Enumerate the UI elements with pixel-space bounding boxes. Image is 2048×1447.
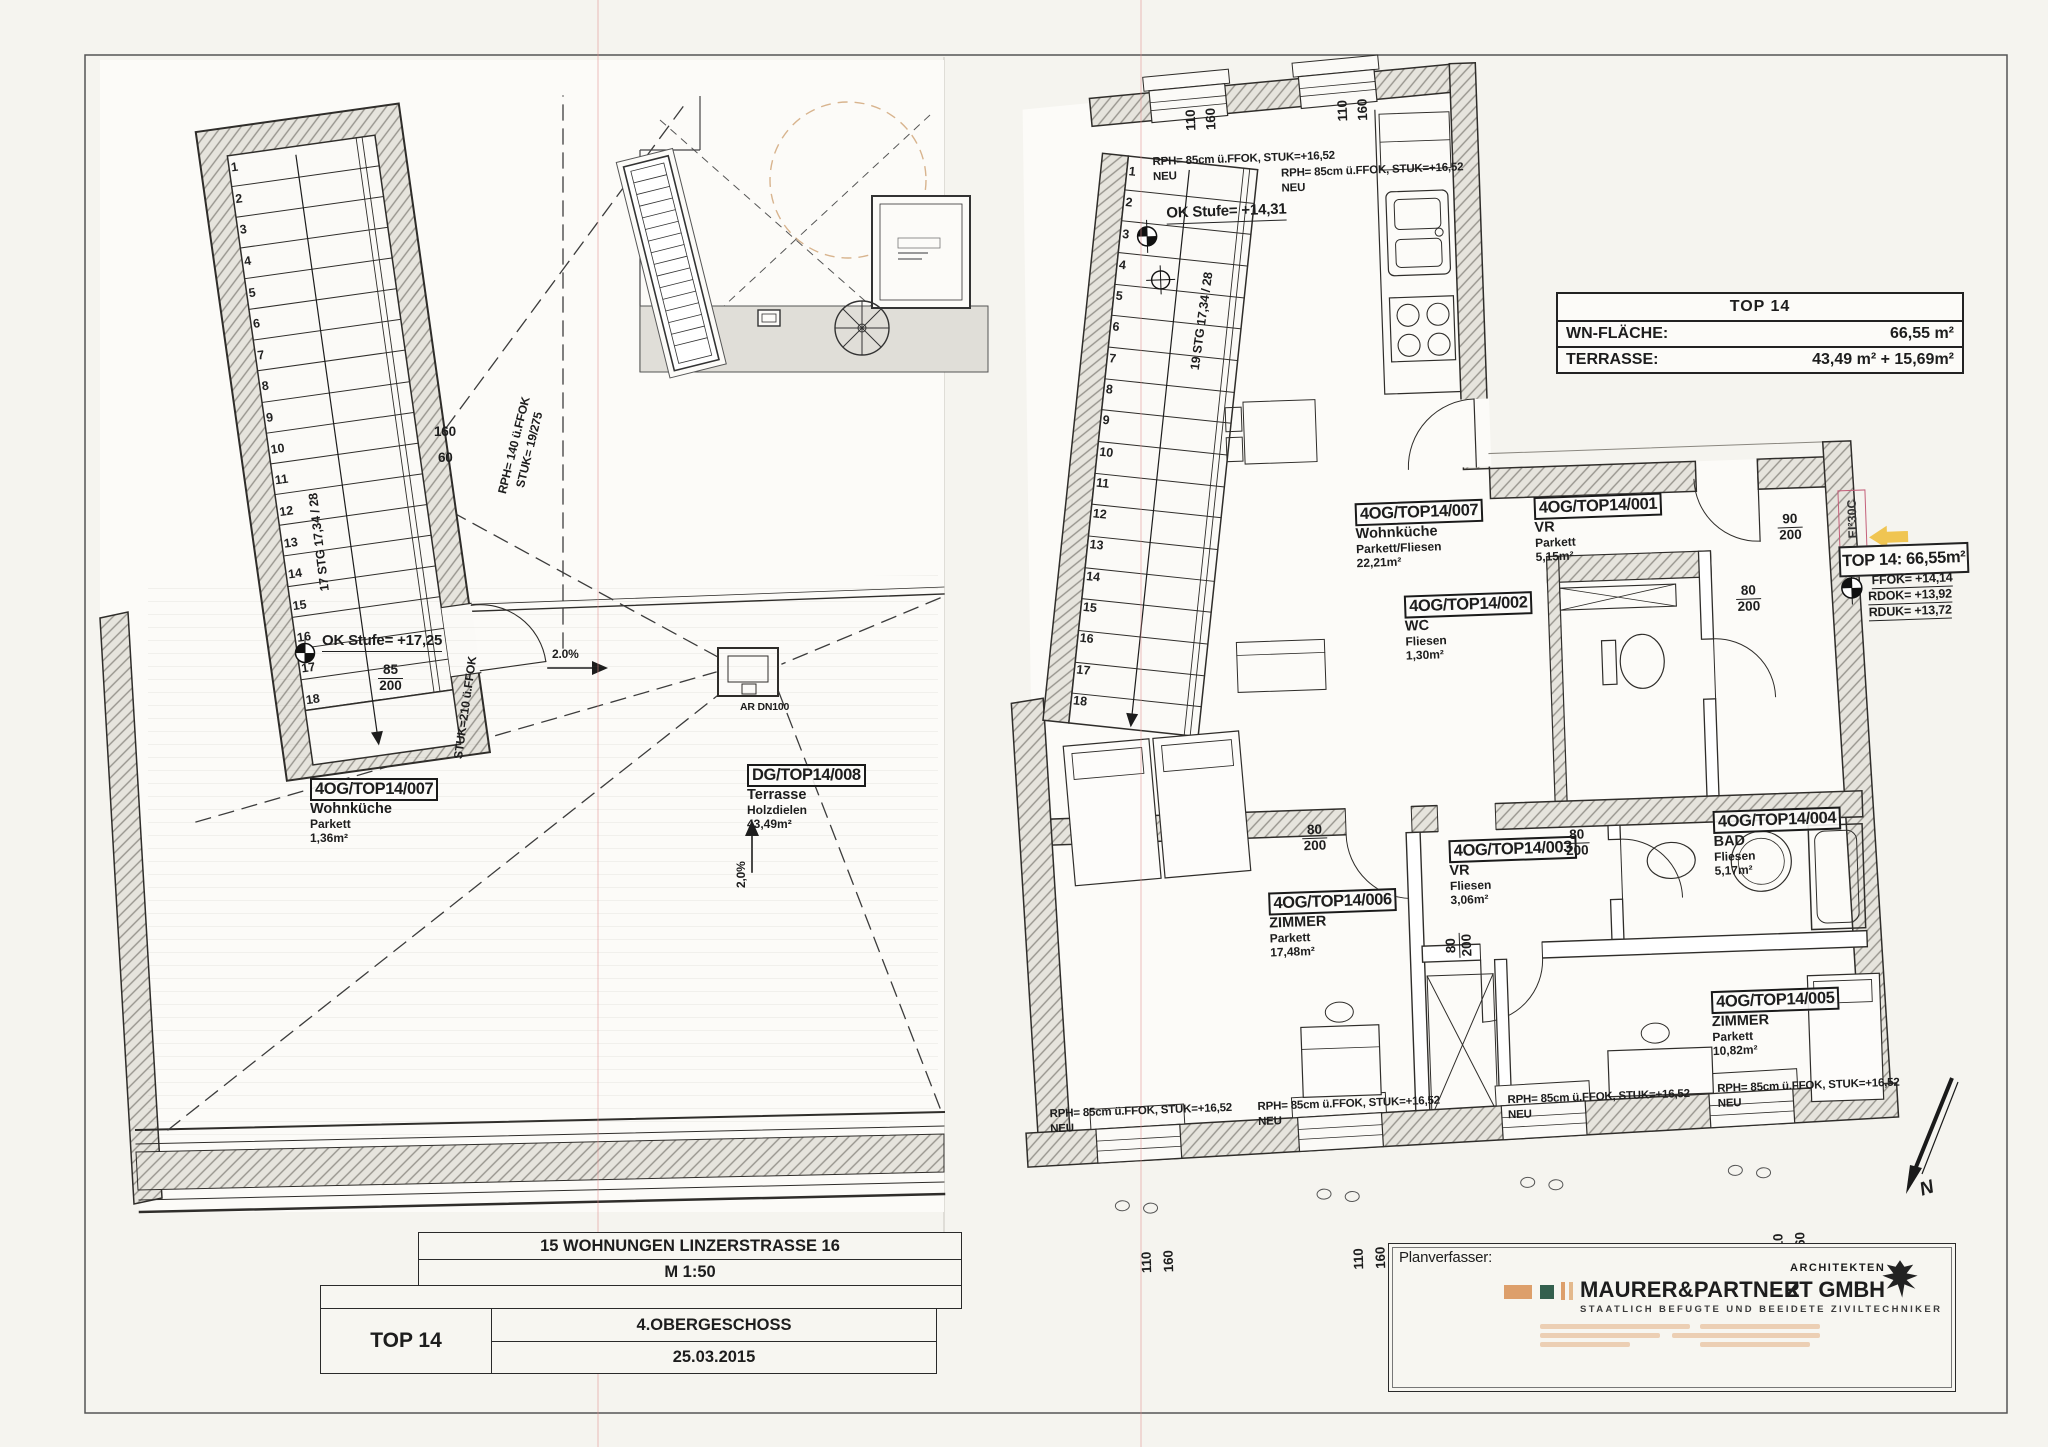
address-line [1540,1333,1660,1338]
title-project: 15 WOHNUNGEN LINZERSTRASSE 16 [418,1232,962,1260]
fold-line [597,0,599,1447]
dim-160: 160 [434,424,456,439]
eagle-emblem [1880,1258,1920,1302]
summary-row: TERRASSE: 43,49 m² + 15,69m² [1558,346,1962,372]
dim-60: 60 [438,450,453,465]
floor-plan-sheet: 123 456 789 101112 131415 161718 17 STG … [0,0,2048,1447]
title-date: 25.03.2015 [491,1341,937,1374]
north-arrow [1906,1078,1958,1194]
window [1143,69,1233,123]
summary-row: WN-FLÄCHE: 66,55 m² [1558,322,1962,346]
title-floor: 4.OBERGESCHOSS [491,1308,937,1342]
firm-name: MAURER&PARTNER [1580,1278,1800,1303]
window [1292,55,1382,109]
title-unit: TOP 14 [320,1308,492,1374]
summary-label: WN-FLÄCHE: [1566,325,1668,343]
fold-line [1140,0,1142,1447]
room-label-terrasse: DG/TOP14/008 Terrasse Holzdielen 43,49m² [747,764,866,831]
address-line [1700,1324,1820,1329]
logo-bar [1569,1282,1573,1300]
title-scale: M 1:50 [418,1259,962,1286]
summary-title: TOP 14 [1558,294,1962,322]
address-line [1540,1342,1630,1347]
room-label-wohnkueche-small: 4OG/TOP14/007 Wohnküche Parkett 1,36m² [310,778,438,845]
summary-label: TERRASSE: [1566,351,1658,369]
window [1291,1092,1391,1204]
planner-label: Planverfasser: [1399,1250,1492,1267]
address-line [1700,1342,1810,1347]
summary-value: 66,55 m² [1890,325,1954,343]
window [1495,1081,1595,1193]
firm-subtitle: STAATLICH BEFUGTE UND BEEIDETE ZIVILTECH… [1580,1305,1942,1316]
slope-label-h: 2.0% [552,648,579,661]
title-empty-row [320,1285,962,1309]
logo-bar [1561,1282,1565,1300]
firm-architekten: ARCHITEKTEN [1790,1262,1885,1274]
address-line [1540,1324,1690,1329]
inset-spiral-stair [835,301,889,355]
slope-label-v: 2,0% [735,861,748,888]
ok-stufe-left: OK Stufe= +17,25 [322,633,442,652]
door-dim-85-200: 85200 [378,663,403,693]
logo-square-green [1540,1285,1554,1299]
summary-value: 43,49 m² + 15,69m² [1812,351,1954,369]
highlight-arrow [1869,525,1909,549]
area-summary-table: TOP 14 WN-FLÄCHE: 66,55 m² TERRASSE: 43,… [1556,292,1964,374]
address-line [1672,1333,1820,1338]
firm-suffix: ZT GMBH [1786,1278,1885,1303]
right-plan [988,33,1931,1220]
inset-room [872,196,970,308]
window [1703,1069,1803,1181]
drain-label: AR DN100 [740,702,789,714]
terrace-decking-texture [148,575,938,1143]
logo-square-orange [1504,1285,1532,1299]
